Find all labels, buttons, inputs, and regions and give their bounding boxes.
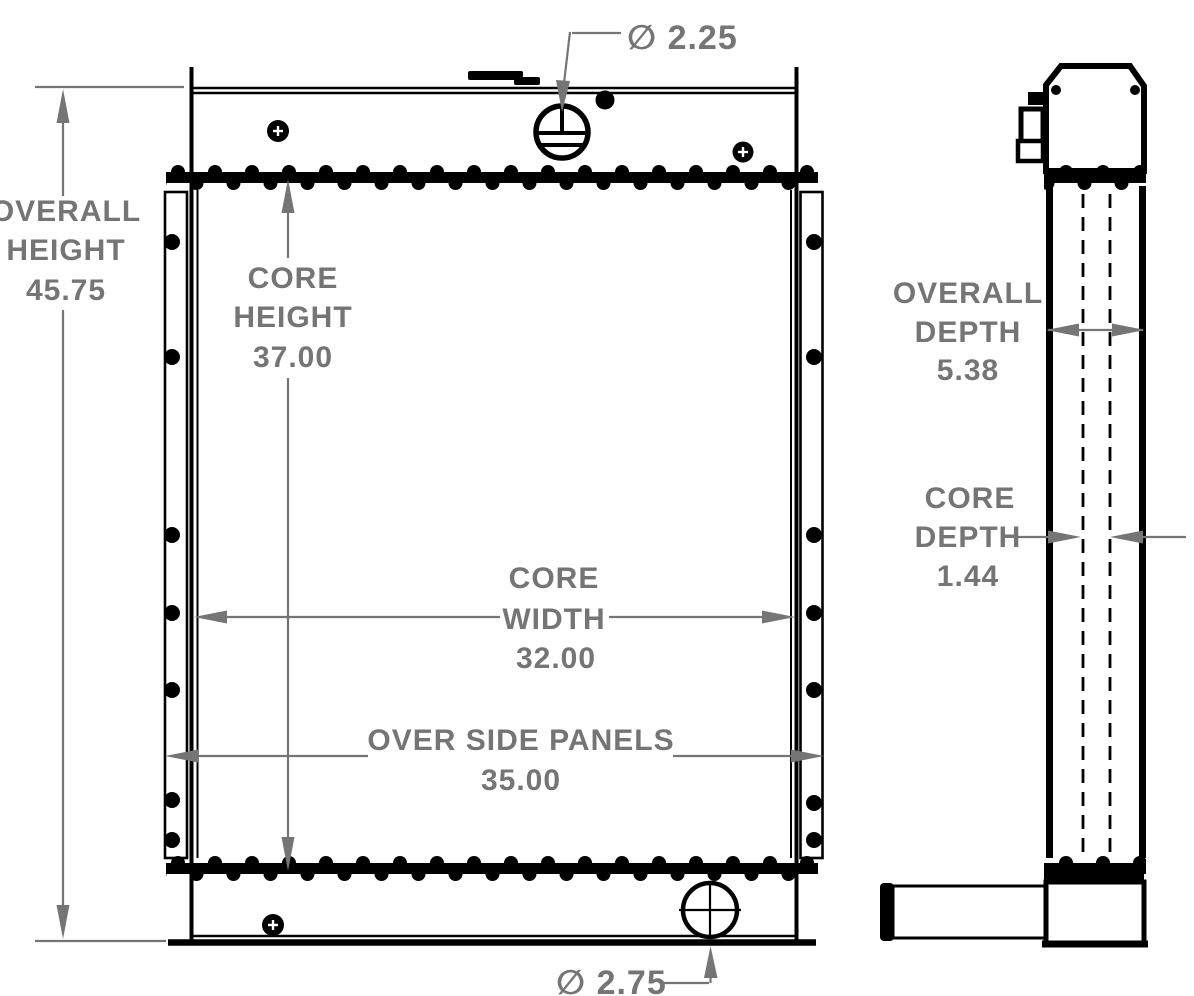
port-diameter-label: ∅ 2.25 xyxy=(627,19,738,57)
bolt-icon xyxy=(806,795,822,811)
dim-label: CORE xyxy=(925,482,1016,515)
dim-label: WIDTH xyxy=(502,603,605,636)
dim-value: 37.00 xyxy=(253,341,333,374)
dim-label: OVER SIDE PANELS xyxy=(367,724,674,757)
vent-dot xyxy=(596,91,615,110)
arrowhead xyxy=(704,946,718,978)
outlet-pipe xyxy=(893,886,1048,938)
port-diameter-label: ∅ 2.75 xyxy=(556,964,667,996)
dim-label: OVERALL xyxy=(0,195,141,228)
bolt-icon xyxy=(806,234,822,250)
dim-label: HEIGHT xyxy=(6,234,125,267)
bolt-icon xyxy=(164,527,180,543)
bolt-icon xyxy=(164,234,180,250)
side-filler-neck xyxy=(1018,92,1045,161)
dim-label: CORE xyxy=(248,262,339,295)
bolt-icon xyxy=(262,914,284,936)
filler-cap-handle-step xyxy=(514,77,540,85)
bolt-icon xyxy=(806,349,822,365)
bolt-icon xyxy=(267,120,289,142)
dim-value: 1.44 xyxy=(937,560,999,593)
dim-value: 32.00 xyxy=(516,642,596,675)
bolt-icon xyxy=(164,792,180,808)
dimension-overall-depth: OVERALL DEPTH 5.38 xyxy=(893,277,1145,387)
side-bottom-tank xyxy=(1046,882,1144,943)
bottom-outlet-port xyxy=(679,883,741,938)
dim-label: DEPTH xyxy=(915,521,1022,554)
dimension-core-height: CORE HEIGHT 37.00 xyxy=(233,179,352,871)
bottom-serration-band xyxy=(166,855,818,882)
arrowhead xyxy=(1110,531,1143,544)
dim-label: OVERALL xyxy=(893,277,1043,310)
arrowhead xyxy=(1048,531,1081,544)
dim-value: 45.75 xyxy=(26,274,106,307)
dimension-over-side-panels: OVER SIDE PANELS 35.00 xyxy=(165,724,824,797)
bolt-icon xyxy=(1130,85,1140,95)
bolt-icon xyxy=(806,527,822,543)
callout-bottom-port: ∅ 2.75 xyxy=(556,946,718,996)
dim-label: CORE xyxy=(509,562,600,595)
bolt-icon xyxy=(1051,85,1061,95)
bolt-icon xyxy=(164,349,180,365)
bolt-icon xyxy=(806,605,822,621)
bolt-icon xyxy=(164,605,180,621)
dim-label: DEPTH xyxy=(915,316,1022,349)
side-bottom-serration xyxy=(1044,855,1146,882)
bolt-icon xyxy=(733,142,754,163)
dimension-core-width: CORE WIDTH 32.00 xyxy=(194,562,795,675)
front-view xyxy=(164,67,823,943)
radiator-dimensional-drawing: OVERALL HEIGHT 45.75 CORE HEIGHT 37.00 C… xyxy=(0,0,1194,996)
bolt-icon xyxy=(164,682,180,698)
bolt-icon xyxy=(806,832,822,848)
arrowhead xyxy=(57,89,70,123)
arrowhead xyxy=(57,905,70,939)
bolt-icon xyxy=(164,832,180,848)
dim-label: HEIGHT xyxy=(233,301,352,334)
side-top-tank xyxy=(1046,66,1144,171)
outlet-pipe-cap xyxy=(880,883,894,941)
side-top-serration xyxy=(1044,164,1146,191)
callout-top-port: ∅ 2.25 xyxy=(556,19,738,112)
dim-value: 5.38 xyxy=(937,354,999,387)
leader-line xyxy=(564,32,570,83)
top-serration-band xyxy=(166,164,818,191)
drawing-canvas: OVERALL HEIGHT 45.75 CORE HEIGHT 37.00 C… xyxy=(0,0,1194,996)
dimension-overall-height: OVERALL HEIGHT 45.75 xyxy=(0,87,184,941)
bolt-icon xyxy=(806,682,822,698)
dim-value: 35.00 xyxy=(481,764,561,797)
